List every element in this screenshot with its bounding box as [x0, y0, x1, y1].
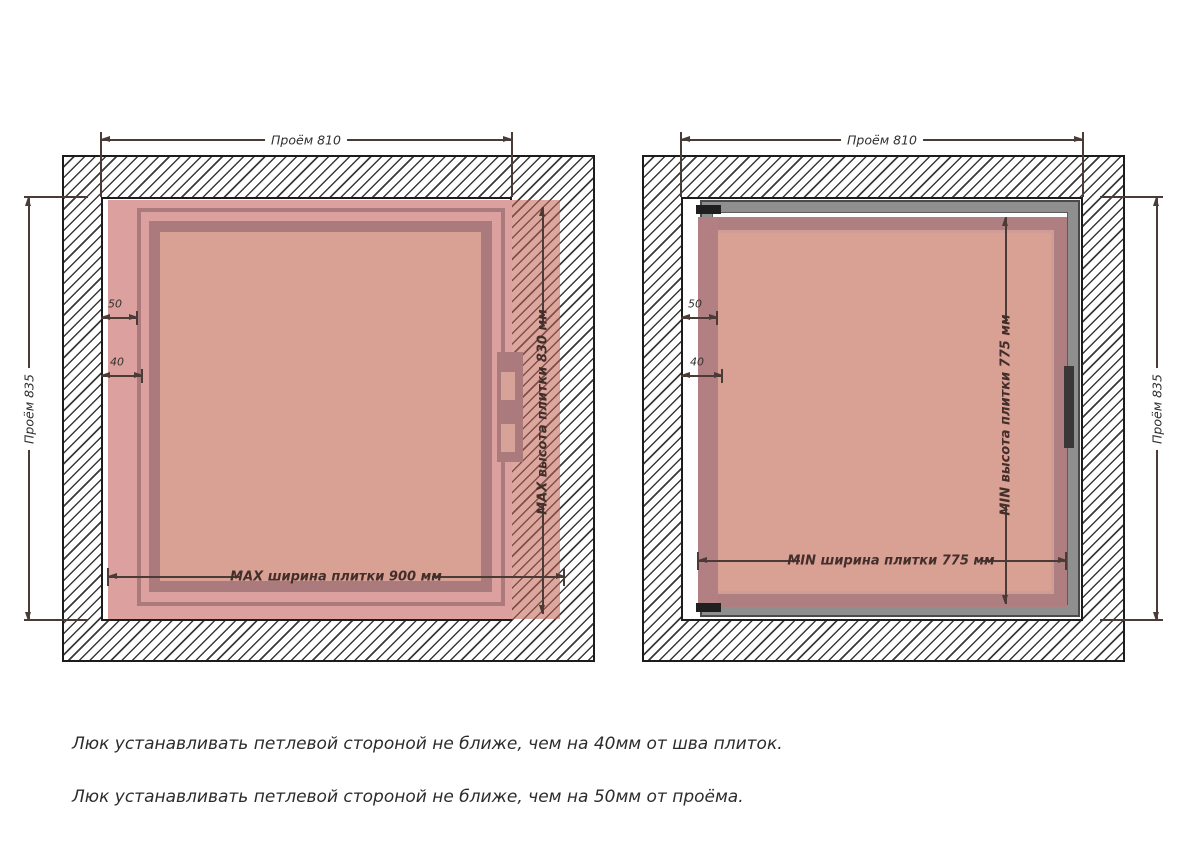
dim-tile-width-label: MIN ширина плитки 775 мм [787, 554, 994, 569]
dim-tile-height-line [1005, 217, 1007, 324]
arrowhead-icon [1074, 136, 1083, 142]
tick [716, 311, 718, 325]
dim-tile-width-line [982, 560, 1067, 562]
arrowhead-icon [681, 372, 690, 378]
note-hinge-seam: Люк устанавливать петлевой стороной не б… [72, 734, 783, 754]
dim-tile-height-label: MIN высота плитки 775 мм [999, 314, 1014, 515]
dim-offset-40-label: 40 [690, 356, 704, 369]
arrowhead-icon [681, 136, 690, 142]
arrowhead-icon [1058, 557, 1067, 563]
dim-opening-width-label: Проём 810 [841, 133, 923, 148]
dim-tile-height-line [1005, 506, 1007, 604]
tile-edge-band [698, 217, 718, 607]
dim-tile-width-line [698, 560, 800, 562]
fastener [696, 205, 721, 214]
arrowhead-icon [1153, 612, 1159, 621]
note-hinge-opening: Люк устанавливать петлевой стороной не б… [72, 787, 744, 807]
hinge [1064, 366, 1074, 448]
arrowhead-icon [1002, 217, 1008, 226]
dim-offset-50-label: 50 [688, 298, 702, 311]
fastener [696, 603, 721, 612]
tick [721, 369, 723, 383]
arrowhead-icon [1002, 595, 1008, 604]
drawing-canvas: Проём 810 Проём 835 50 40 MAX [0, 0, 1200, 847]
diagram-min: Проём 810 Проём 835 50 40 MIN ширина пли… [0, 0, 1200, 847]
arrowhead-icon [1153, 197, 1159, 206]
dim-opening-height-label: Проём 835 [1150, 368, 1165, 450]
arrowhead-icon [681, 314, 690, 320]
arrowhead-icon [698, 557, 707, 563]
